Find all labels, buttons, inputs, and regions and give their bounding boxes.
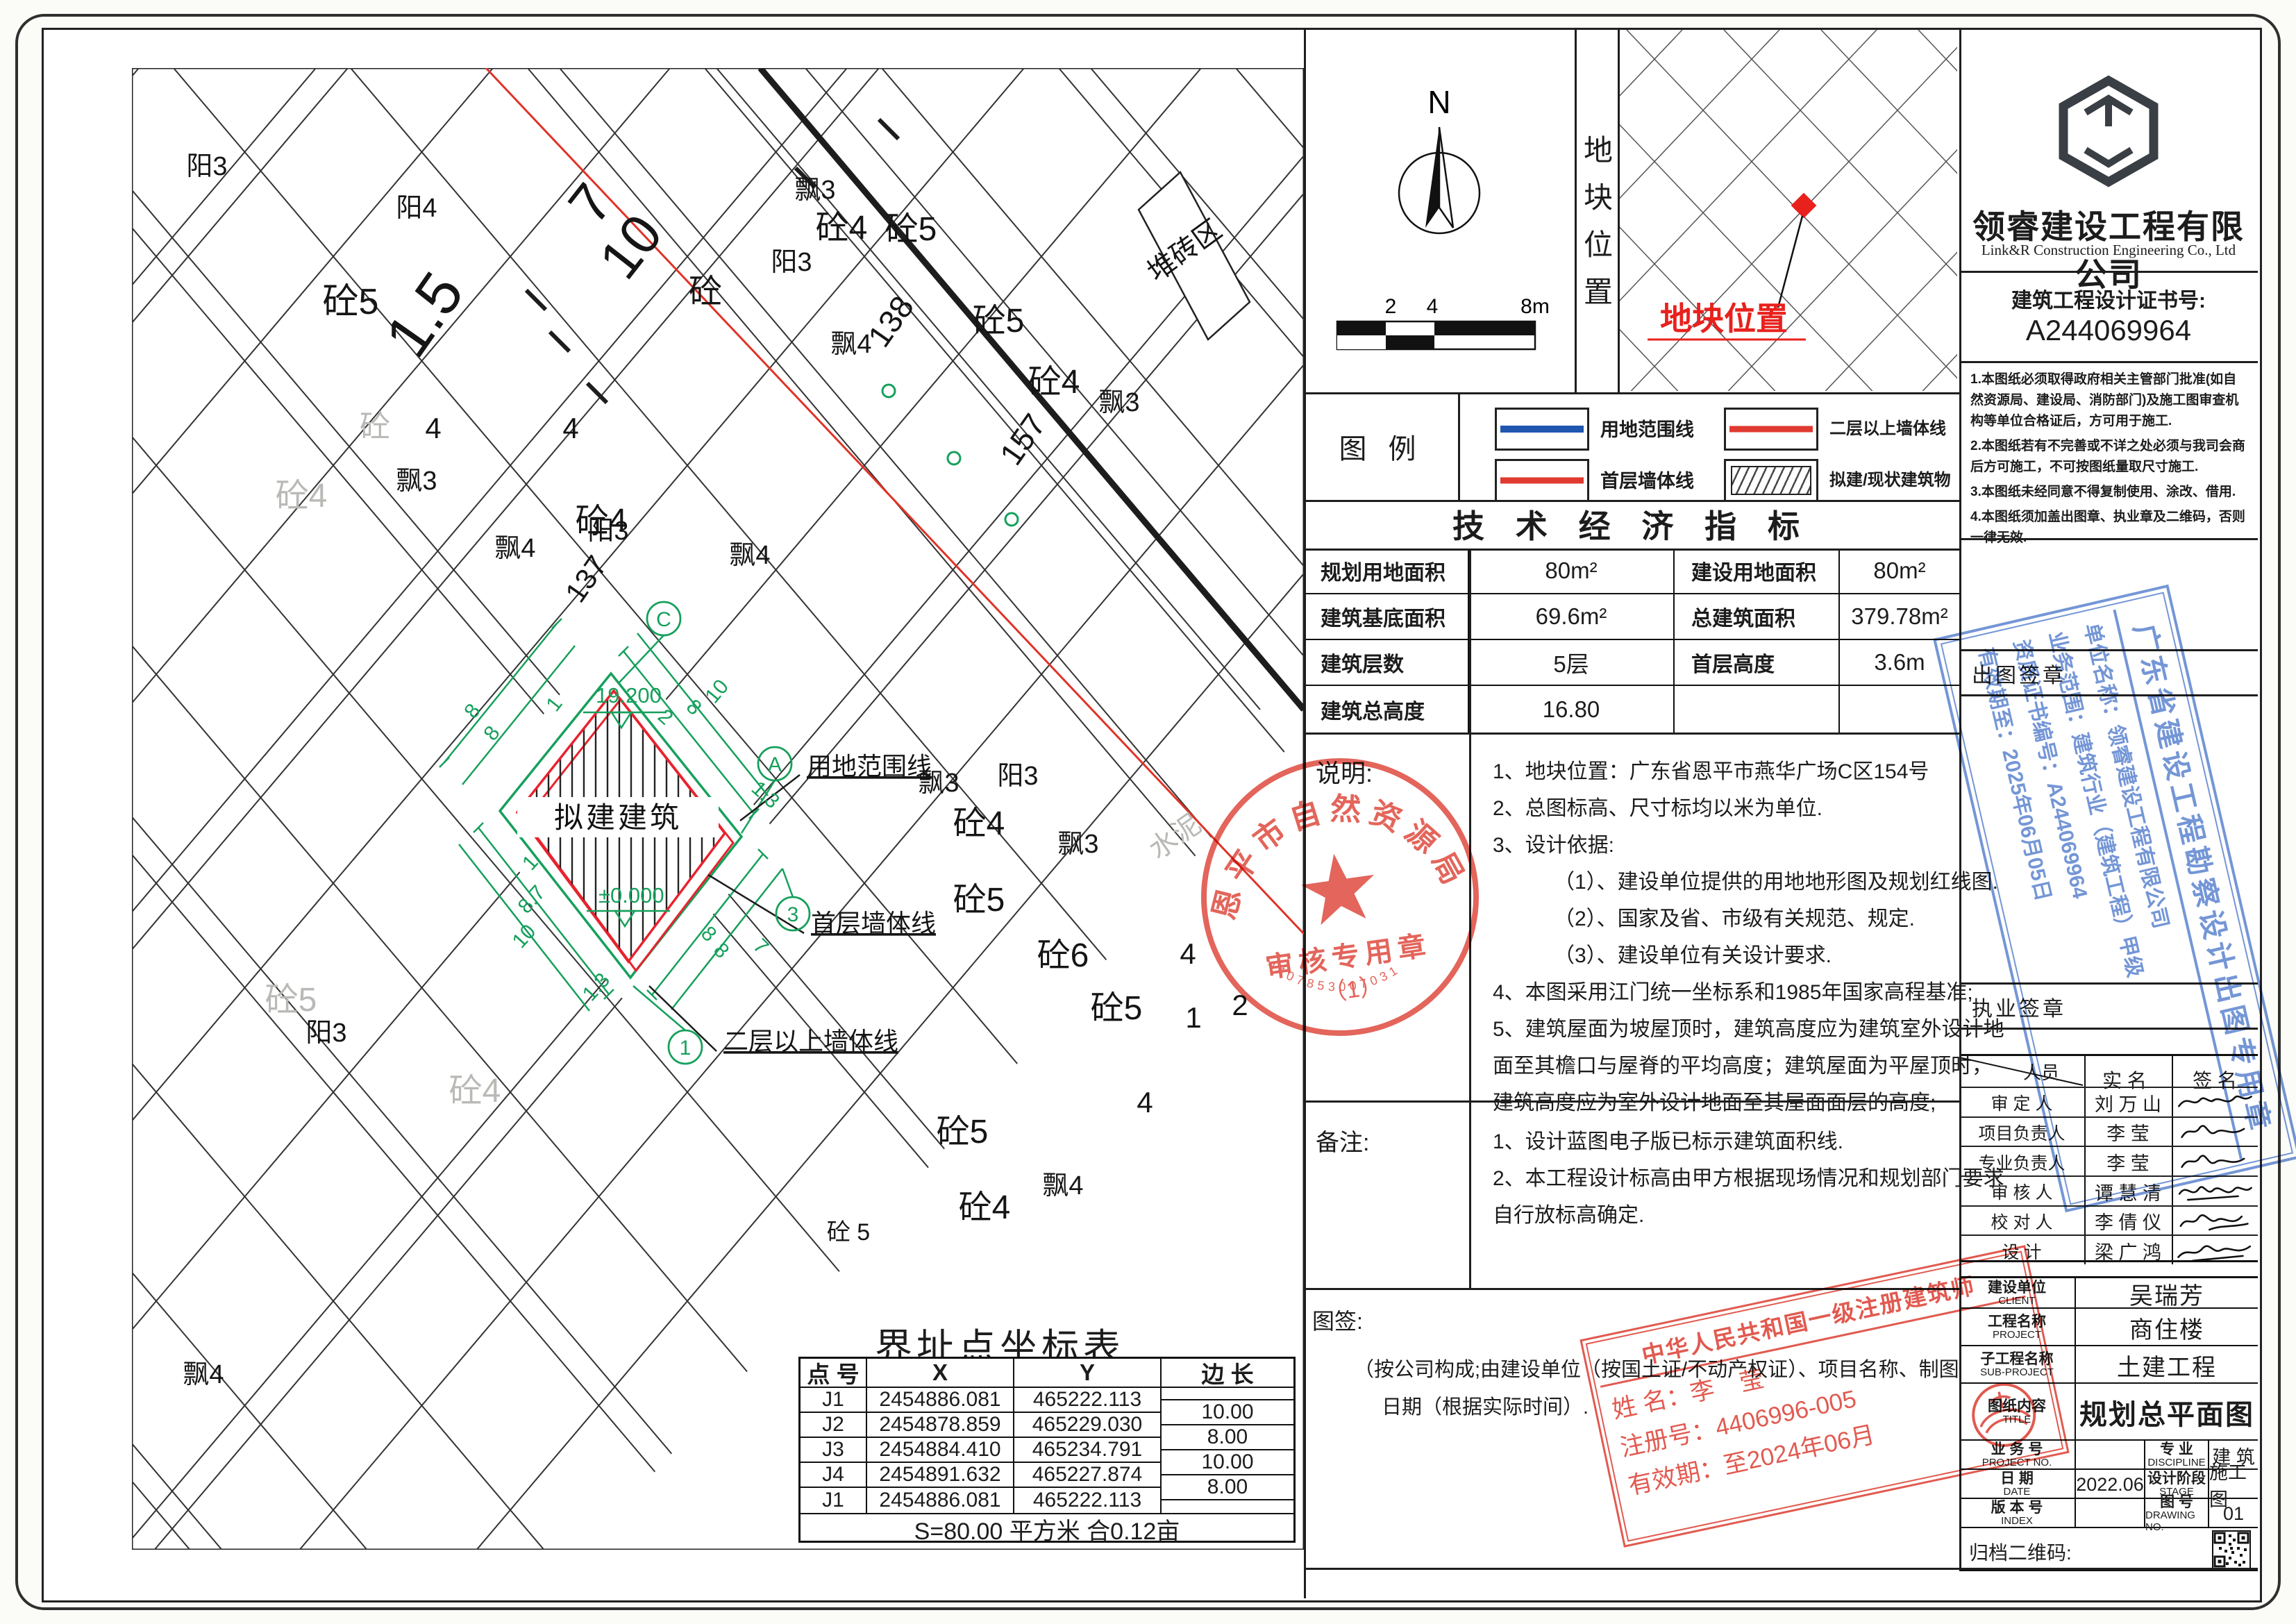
titleblock-grid-value: 01 bbox=[2209, 1499, 2258, 1528]
divider bbox=[1575, 28, 1577, 392]
plan-label: 4 bbox=[425, 412, 441, 444]
company-name-en: Link&R Construction Engineering Co., Ltd bbox=[1959, 242, 2258, 259]
legend: 用地范围线二层以上墙体线首层墙体线拟建/现状建筑物 bbox=[1458, 392, 1961, 500]
plan-label: 飘4 bbox=[1042, 1171, 1083, 1200]
indicators-table: 规划用地面积80m²建设用地面积80m²建筑基底面积69.6m²总建筑面积379… bbox=[1304, 549, 1959, 733]
indicator-name: 首层高度 bbox=[1675, 640, 1840, 686]
drawing-sheet: 砼5阳4阳31.5飘3阳3710飘3砼4阳3砼5138飘4砼5砼4157飘3堆砖… bbox=[0, 0, 2296, 1624]
note-line: 面至其檐口与屋脊的平均高度；建筑屋面为平屋顶时， bbox=[1493, 1048, 1951, 1085]
note-line: 1、设计蓝图电子版已标示建筑面积线. bbox=[1493, 1123, 1951, 1160]
titleblock-grid-value: 2022.06 bbox=[2076, 1470, 2145, 1499]
coords-cell: 465222.113 bbox=[1014, 1388, 1162, 1413]
signature bbox=[2172, 1236, 2258, 1266]
legend-line-red bbox=[1729, 426, 1813, 433]
coords-header: 边 长 bbox=[1162, 1359, 1293, 1388]
indicator-value bbox=[1840, 686, 1959, 733]
plan-label: 砼4 bbox=[816, 210, 868, 246]
divider bbox=[1304, 392, 1959, 394]
legend-label: 用地范围线 bbox=[1600, 415, 1694, 442]
plan-label: 阳3 bbox=[997, 762, 1038, 791]
plan-label: 砼 bbox=[360, 410, 390, 444]
indicator-name: 建筑总高度 bbox=[1304, 686, 1469, 733]
legend-title: 图 例 bbox=[1304, 392, 1458, 500]
coords-cell: 465227.874 bbox=[1014, 1463, 1162, 1488]
titleblock-grid-row: 日 期DATE2022.06设计阶段STAGE施工图 bbox=[1959, 1470, 2258, 1499]
divider bbox=[1618, 28, 1620, 392]
plan-label: 砼6 bbox=[1037, 937, 1089, 974]
plan-label: 砼5 bbox=[323, 282, 379, 322]
side-length-cell bbox=[1162, 1500, 1293, 1513]
titleblock-grid-row: 版 本 号INDEX图 号DRAWING NO.01 bbox=[1959, 1499, 2258, 1528]
side-length-cell: 8.00 bbox=[1162, 1425, 1293, 1450]
titleblock-value: 土建工程 bbox=[2076, 1346, 2258, 1384]
indicator-value: 5层 bbox=[1469, 640, 1675, 686]
cert-label: 建筑工程设计证书号: bbox=[1959, 283, 2258, 314]
note-line: （1）、建设单位提供的用地地形图及规划红线图. bbox=[1554, 864, 1951, 901]
building-label: 拟建建筑 bbox=[554, 801, 682, 834]
location-vertical-title: 地块位置 bbox=[1575, 76, 1618, 382]
coords-cell: 465234.791 bbox=[1014, 1438, 1162, 1463]
plan-label: 飘4 bbox=[494, 534, 535, 563]
coords-cell: 2454878.859 bbox=[867, 1413, 1014, 1438]
titleblock-value: 规划总平面图 bbox=[2076, 1384, 2258, 1441]
indicator-value: 69.6m² bbox=[1469, 594, 1675, 640]
note-line: 1、地块位置：广东省恩平市燕华广场C区154号 bbox=[1493, 753, 1951, 790]
coords-header: Y bbox=[1014, 1359, 1162, 1388]
plan-label: 砼5 bbox=[953, 882, 1005, 919]
callout-label: 二层以上墙体线 bbox=[723, 1027, 898, 1055]
axis-bubble: 3 bbox=[787, 903, 799, 926]
coords-cell: 2454884.410 bbox=[867, 1438, 1014, 1463]
site-marker bbox=[1791, 193, 1817, 219]
indicator-name bbox=[1675, 686, 1840, 733]
coords-cell: J2 bbox=[801, 1413, 867, 1438]
plan-label: 砼4 bbox=[1028, 364, 1080, 401]
coords-cell: 2454891.632 bbox=[867, 1463, 1014, 1488]
signoff-row: 校 对 人李 倩 仪 bbox=[1959, 1205, 2258, 1237]
coords-header: 点 号 bbox=[801, 1359, 867, 1388]
general-note-line: 1.本图纸必须取得政府相关主管部门批准(如自然资源局、建设局、消防部门)及施工图… bbox=[1970, 369, 2248, 432]
scale-bar: 2 4 8m bbox=[1337, 295, 1550, 349]
plan-label: 砼4 bbox=[953, 805, 1005, 842]
plan-label: 砼5 bbox=[937, 1114, 989, 1150]
legend-label: 首层墙体线 bbox=[1600, 466, 1694, 493]
coords-cell: 2454886.081 bbox=[867, 1488, 1014, 1513]
plan-label: 4 bbox=[1137, 1086, 1153, 1119]
titleblock-value: 吴瑞芳 bbox=[2076, 1278, 2258, 1309]
divider bbox=[1959, 361, 2258, 363]
general-notes: 1.本图纸必须取得政府相关主管部门批准(如自然资源局、建设局、消防部门)及施工图… bbox=[1970, 369, 2248, 553]
architect-emblem bbox=[1961, 1372, 2047, 1457]
indicator-value: 16.80 bbox=[1469, 686, 1675, 733]
plan-label: 砼5 bbox=[265, 982, 317, 1019]
north-label: N bbox=[1427, 84, 1450, 120]
indicator-name: 建筑层数 bbox=[1304, 640, 1469, 686]
callout-label: 用地范围线 bbox=[807, 752, 932, 780]
indicator-name: 建筑基底面积 bbox=[1304, 594, 1469, 640]
indicator-value: 379.78m² bbox=[1840, 594, 1959, 640]
callout-label: 首层墙体线 bbox=[811, 909, 936, 937]
cert-number: A244069964 bbox=[1959, 314, 2258, 347]
legend-line-blue bbox=[1500, 426, 1584, 433]
plan-label: 阳3 bbox=[771, 248, 812, 277]
divider bbox=[1959, 271, 2258, 273]
plan-label: 飘4 bbox=[729, 541, 770, 570]
titleblock-label: 版 本 号INDEX bbox=[1959, 1499, 2076, 1528]
legend-line-red bbox=[1500, 478, 1584, 484]
legend-label: 拟建/现状建筑物 bbox=[1829, 466, 1951, 490]
plan-label: 4 bbox=[562, 412, 578, 444]
coords-cell: J3 bbox=[801, 1438, 867, 1463]
plan-label: 砼4 bbox=[959, 1189, 1011, 1226]
divider bbox=[1304, 549, 1959, 551]
side-length-column: 10.008.0010.008.00 bbox=[1162, 1388, 1293, 1513]
plan-label: 砼5 bbox=[1091, 990, 1143, 1027]
legend-swatch-red-line bbox=[1724, 408, 1818, 451]
plan-label: 飘3 bbox=[1098, 388, 1139, 417]
note-line: 建筑高度应为室外设计地面至其屋面面层的高度; bbox=[1493, 1085, 1951, 1121]
titleblock-grid-value: 施工图 bbox=[2209, 1470, 2258, 1499]
plan-label: 飘3 bbox=[1057, 830, 1098, 859]
plan-label: 飘3 bbox=[794, 176, 835, 205]
titleblock-grid-value bbox=[2076, 1441, 2145, 1470]
legend-swatch-blue-line bbox=[1495, 408, 1589, 451]
scale-4: 4 bbox=[1427, 295, 1439, 318]
coords-cell: J4 bbox=[801, 1463, 867, 1488]
plan-label: 飘3 bbox=[396, 467, 437, 496]
side-length-cell: 10.00 bbox=[1162, 1450, 1293, 1475]
plan-label: 砼5 bbox=[973, 303, 1025, 340]
note-line: 3、设计依据: bbox=[1493, 827, 1951, 864]
divider bbox=[1304, 733, 1959, 735]
general-note-line: 3.本图纸未经同意不得复制使用、涂改、借用. bbox=[1970, 482, 2248, 503]
titleblock-label: 图 号DRAWING NO. bbox=[2145, 1499, 2209, 1528]
elevation-label: ±0.000 bbox=[598, 883, 664, 907]
divider bbox=[1304, 1100, 1959, 1103]
note-line: 2、本工程设计标高由甲方根据现场情况和规划部门要求 bbox=[1493, 1160, 1951, 1197]
qr-code bbox=[2212, 1530, 2251, 1569]
plan-label: 砼4 bbox=[449, 1073, 501, 1110]
note-line: （3）、建设单位有关设计要求. bbox=[1554, 937, 1951, 974]
side-length-cell: 10.00 bbox=[1162, 1400, 1293, 1425]
indicator-name: 建设用地面积 bbox=[1675, 549, 1840, 594]
side-length-cell: 8.00 bbox=[1162, 1475, 1293, 1500]
coords-cell: J1 bbox=[801, 1488, 867, 1513]
shuoming-notes: 1、地块位置：广东省恩平市燕华广场C区154号2、总图标高、尺寸标均以米为单位.… bbox=[1493, 753, 1951, 1121]
tuqian-label: 图签: bbox=[1312, 1304, 1363, 1336]
legend-swatch-red-line bbox=[1495, 459, 1589, 502]
coords-cell: 465222.113 bbox=[1014, 1488, 1162, 1513]
general-note-line: 4.本图纸须加盖出图章、执业章及二维码，否则一律无效. bbox=[1970, 507, 2248, 549]
plan-label: 砼5 bbox=[885, 211, 937, 248]
beizhu-label: 备注: bbox=[1316, 1123, 1369, 1157]
side-length-cell bbox=[1162, 1388, 1293, 1400]
note-line: 4、本图采用江门统一坐标系和1985年国家高程基准; bbox=[1493, 974, 1951, 1011]
plan-label: 砼 5 bbox=[827, 1219, 870, 1246]
titleblock-label: 日 期DATE bbox=[1959, 1470, 2076, 1499]
titleblock-grid-value bbox=[2076, 1499, 2145, 1528]
indicator-value: 80m² bbox=[1469, 549, 1675, 594]
coords-table: 点 号XY边 长J12454886.081465222.113J22454878… bbox=[798, 1357, 1296, 1543]
north-compass: N 2 4 8m bbox=[1306, 30, 1573, 391]
scale-2: 2 bbox=[1385, 295, 1397, 318]
legend-swatch-hatch bbox=[1724, 459, 1818, 502]
plan-label: 飘4 bbox=[183, 1360, 224, 1389]
company-logo bbox=[2050, 72, 2168, 190]
location-map: 地块位置 bbox=[1620, 30, 1957, 391]
scale-8m: 8m bbox=[1520, 295, 1550, 318]
plan-label: 飘4 bbox=[830, 330, 871, 359]
note-line: 2、总图标高、尺寸标均以米为单位. bbox=[1493, 790, 1951, 827]
divider bbox=[1959, 538, 2258, 540]
plan-label: 阳3 bbox=[305, 1019, 346, 1048]
plan-label: 砼 bbox=[689, 274, 722, 310]
coords-cell: J1 bbox=[801, 1388, 867, 1413]
qr-label: 归档二维码: bbox=[1969, 1538, 2072, 1566]
archive-qr-row: 归档二维码: bbox=[1959, 1528, 2258, 1571]
signoff-name: 李 倩 仪 bbox=[2084, 1207, 2172, 1237]
coords-header: X bbox=[867, 1359, 1014, 1388]
axis-bubble: 1 bbox=[680, 1037, 692, 1060]
general-note-line: 2.本图纸若有不完善或不详之处必须与我司会商后方可施工，不可按图纸量取尺寸施工. bbox=[1970, 436, 2248, 478]
elevation-label: 19.200 bbox=[596, 683, 662, 708]
note-line: （2）、国家及省、市级有关规范、规定. bbox=[1554, 901, 1951, 937]
axis-bubble: C bbox=[656, 608, 671, 631]
plan-label: 砼4 bbox=[276, 478, 328, 514]
divider bbox=[1304, 500, 1959, 502]
divider bbox=[1304, 1568, 2258, 1570]
legend-label: 二层以上墙体线 bbox=[1829, 415, 1946, 439]
beizhu-notes: 1、设计蓝图电子版已标示建筑面积线.2、本工程设计标高由甲方根据现场情况和规划部… bbox=[1493, 1123, 1951, 1234]
signature bbox=[2172, 1207, 2258, 1237]
coords-cell: 465229.030 bbox=[1014, 1413, 1162, 1438]
indicators-title: 技 术 经 济 指 标 bbox=[1304, 500, 1959, 549]
coords-cell: 2454886.081 bbox=[867, 1388, 1014, 1413]
axis-bubble: A bbox=[768, 753, 782, 776]
review-round-stamp: 恩平市自然资源局 审核专用章 （1） 4407853007031 bbox=[1180, 737, 1500, 1057]
titleblock-value: 商住楼 bbox=[2076, 1309, 2258, 1346]
coords-footer: S=80.00 平方米 合0.12亩 bbox=[801, 1513, 1293, 1543]
plan-label: 阳4 bbox=[396, 194, 437, 223]
indicator-value: 80m² bbox=[1840, 549, 1959, 594]
note-line: 自行放标高确定. bbox=[1493, 1197, 1951, 1234]
titleblock-label: 专 业DISCIPLINE bbox=[2145, 1441, 2209, 1470]
indicator-name: 规划用地面积 bbox=[1304, 549, 1469, 594]
plan-label: 阳3 bbox=[186, 152, 227, 181]
note-line: 5、建筑屋面为坡屋顶时，建筑高度应为建筑室外设计地 bbox=[1493, 1011, 1951, 1048]
site-marker-label: 地块位置 bbox=[1660, 301, 1788, 337]
plan-label: 砼4 bbox=[576, 503, 628, 539]
signoff-name: 梁 广 鸿 bbox=[2084, 1236, 2172, 1266]
indicator-name: 总建筑面积 bbox=[1675, 594, 1840, 640]
